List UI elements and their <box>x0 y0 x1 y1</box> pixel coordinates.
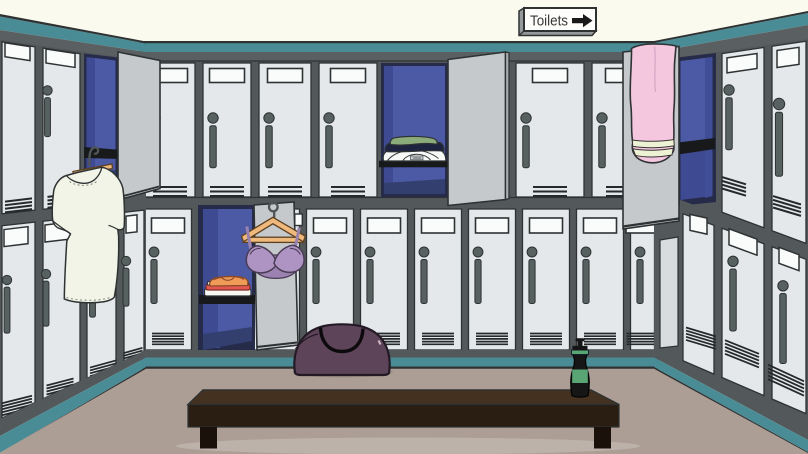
svg-text:Toilets: Toilets <box>530 12 568 29</box>
